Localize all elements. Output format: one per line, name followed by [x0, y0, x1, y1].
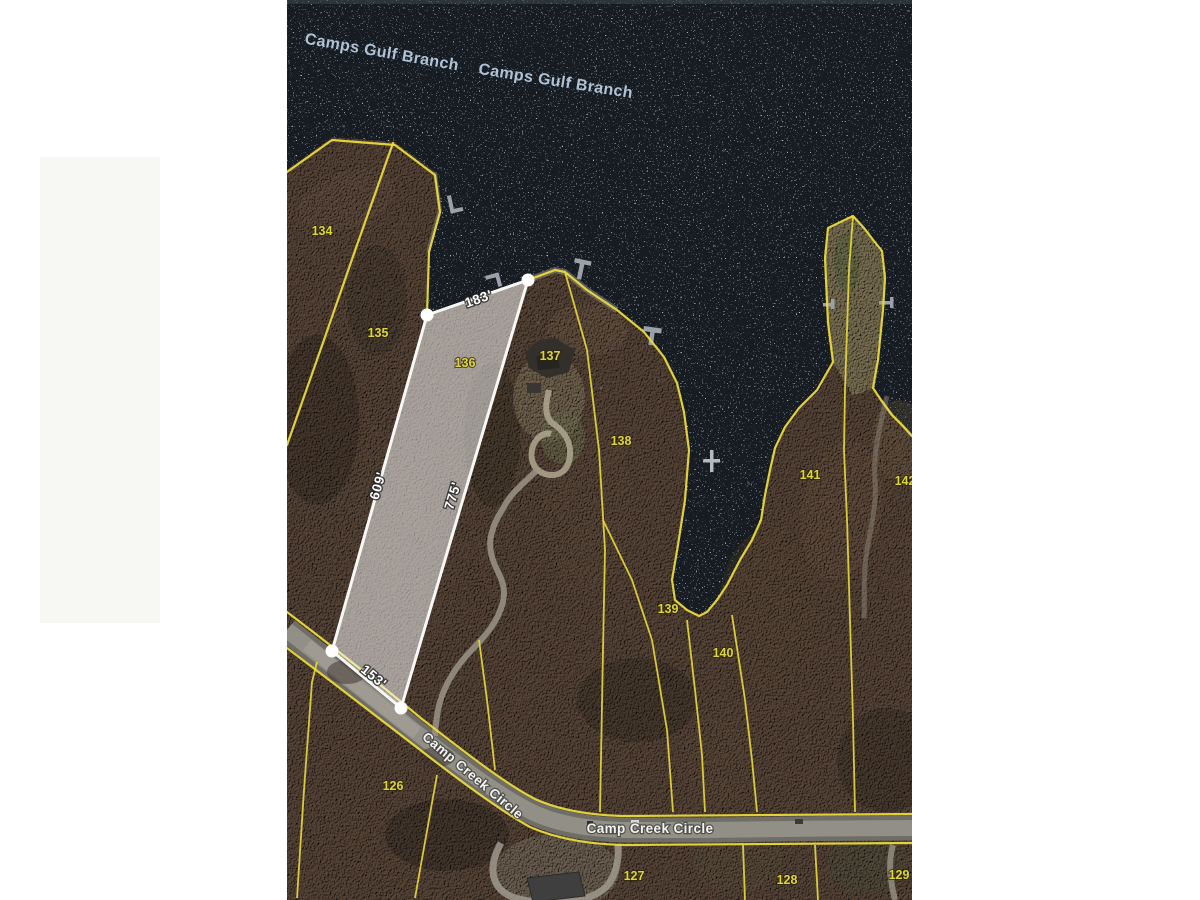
vehicle: [795, 819, 803, 824]
parcel-label-134: 134: [312, 224, 333, 238]
parcel-label-137: 137: [540, 349, 561, 363]
parcel-label-142: 142: [895, 474, 912, 488]
road-label-horizontal: Camp Creek Circle: [587, 821, 714, 836]
parcel-label-127: 127: [624, 869, 645, 883]
left-ghost-panel: [40, 157, 160, 623]
parcel-label-128: 128: [777, 873, 798, 887]
parcel-label-136: 136: [455, 356, 476, 370]
parcel-label-135: 135: [368, 326, 389, 340]
parcel-corner-dot: [522, 274, 535, 287]
aerial-parcel-map[interactable]: Camps Gulf Branch Camps Gulf Branch 183'…: [287, 0, 912, 900]
parcel-label-140: 140: [713, 646, 734, 660]
parcel-corner-dot: [326, 645, 339, 658]
parcel-label-126: 126: [383, 779, 404, 793]
parcel-corner-dot: [421, 309, 434, 322]
map-canvas: Camps Gulf Branch Camps Gulf Branch 183'…: [287, 0, 912, 900]
parcel-label-139: 139: [658, 602, 679, 616]
parcel-label-141: 141: [800, 468, 821, 482]
parcel-corner-dot: [395, 702, 408, 715]
parcel-label-129: 129: [889, 868, 910, 882]
parcel-label-138: 138: [611, 434, 632, 448]
listing-photo-page: Camps Gulf Branch Camps Gulf Branch 183'…: [0, 0, 1200, 900]
image-top-edge: [287, 0, 912, 4]
